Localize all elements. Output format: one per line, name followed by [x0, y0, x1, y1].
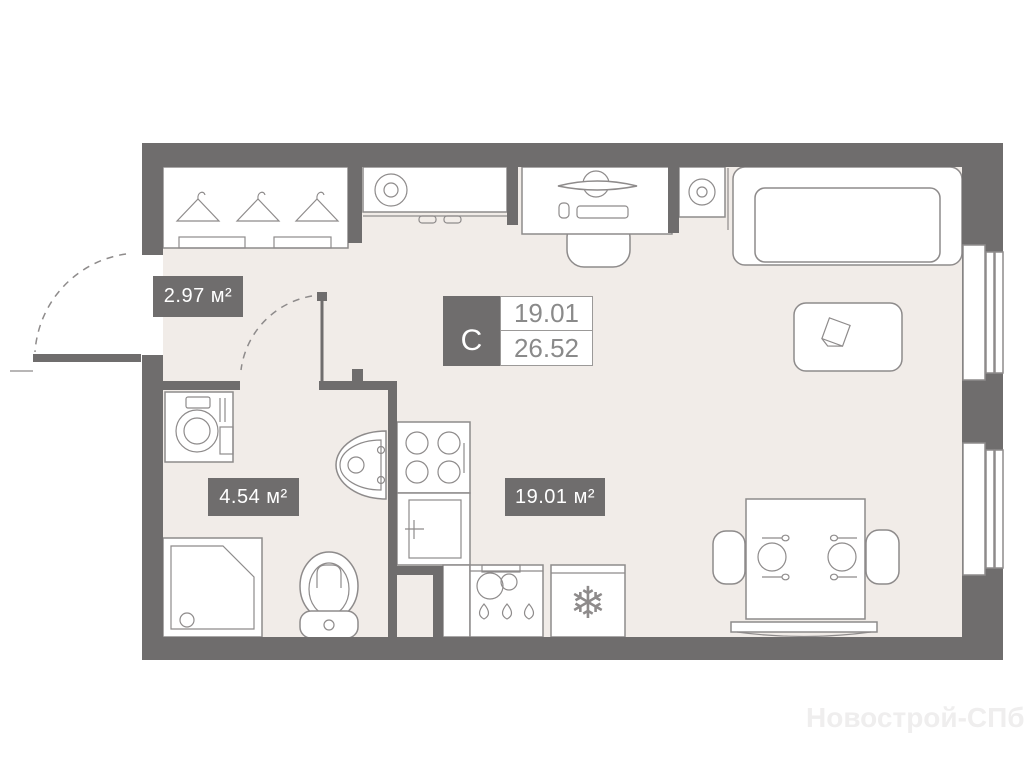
- bathroom-kitchen-wall: [388, 381, 397, 637]
- watermark: Новострой-СПб: [806, 702, 1018, 734]
- cistern: [300, 611, 358, 638]
- unit-type-badge: С: [443, 296, 500, 366]
- wall-left-lower: [142, 355, 163, 660]
- unit-area-values: 19.01 26.52: [500, 296, 593, 366]
- window-sill: [963, 245, 985, 380]
- total-area-value: 26.52: [500, 330, 593, 366]
- washing-machine: [165, 392, 233, 462]
- wall-stub: [507, 167, 518, 225]
- wall-top: [142, 143, 1003, 167]
- door-swing-arc: [35, 254, 126, 352]
- duct-shaft-wall: [433, 566, 443, 637]
- dining-table: [746, 499, 865, 619]
- narrow-cabinet: [443, 565, 470, 637]
- sofa: [733, 167, 962, 265]
- radiator: [731, 622, 877, 632]
- toilet: [300, 552, 358, 638]
- bathroom-area-label: 4.54 м²: [208, 478, 299, 516]
- wall-right: [962, 143, 1003, 660]
- hallway-area-label: 2.97 м²: [153, 276, 243, 317]
- wall-stub: [348, 167, 362, 243]
- dining-chair: [866, 530, 899, 584]
- window-glazing: [986, 252, 994, 373]
- fridge: ❄: [551, 565, 625, 637]
- unit-info-box: С 19.01 26.52: [443, 296, 593, 366]
- dishwasher: [470, 565, 543, 637]
- living-area-value: 19.01: [500, 296, 593, 332]
- door-leaf: [33, 354, 141, 362]
- bathroom-wall: [319, 381, 397, 390]
- bathroom-wall: [352, 369, 363, 381]
- dining-chair: [713, 531, 745, 584]
- coffee-table: [794, 303, 902, 371]
- floor-plan-page: ❄ 2.97 м² 4.54 м: [0, 0, 1024, 768]
- floor-plan: ❄: [0, 0, 1024, 768]
- snowflake-icon: ❄: [570, 578, 607, 629]
- stove: [397, 422, 470, 493]
- window-glazing: [986, 450, 994, 568]
- kitchen-sink-cabinet: [397, 493, 470, 565]
- window-glazing: [995, 252, 1003, 373]
- entrance-door: [10, 254, 141, 371]
- window-sill: [963, 443, 985, 575]
- shower: [163, 538, 262, 637]
- wardrobe: [163, 167, 348, 248]
- wall-stub: [668, 167, 679, 233]
- window: [963, 245, 1003, 380]
- wall-bottom: [142, 637, 1003, 660]
- bathroom-wall: [142, 381, 240, 390]
- living-area-label: 19.01 м²: [505, 478, 605, 516]
- wall-left-upper: [142, 143, 163, 255]
- window-glazing: [995, 450, 1003, 568]
- window: [963, 443, 1003, 575]
